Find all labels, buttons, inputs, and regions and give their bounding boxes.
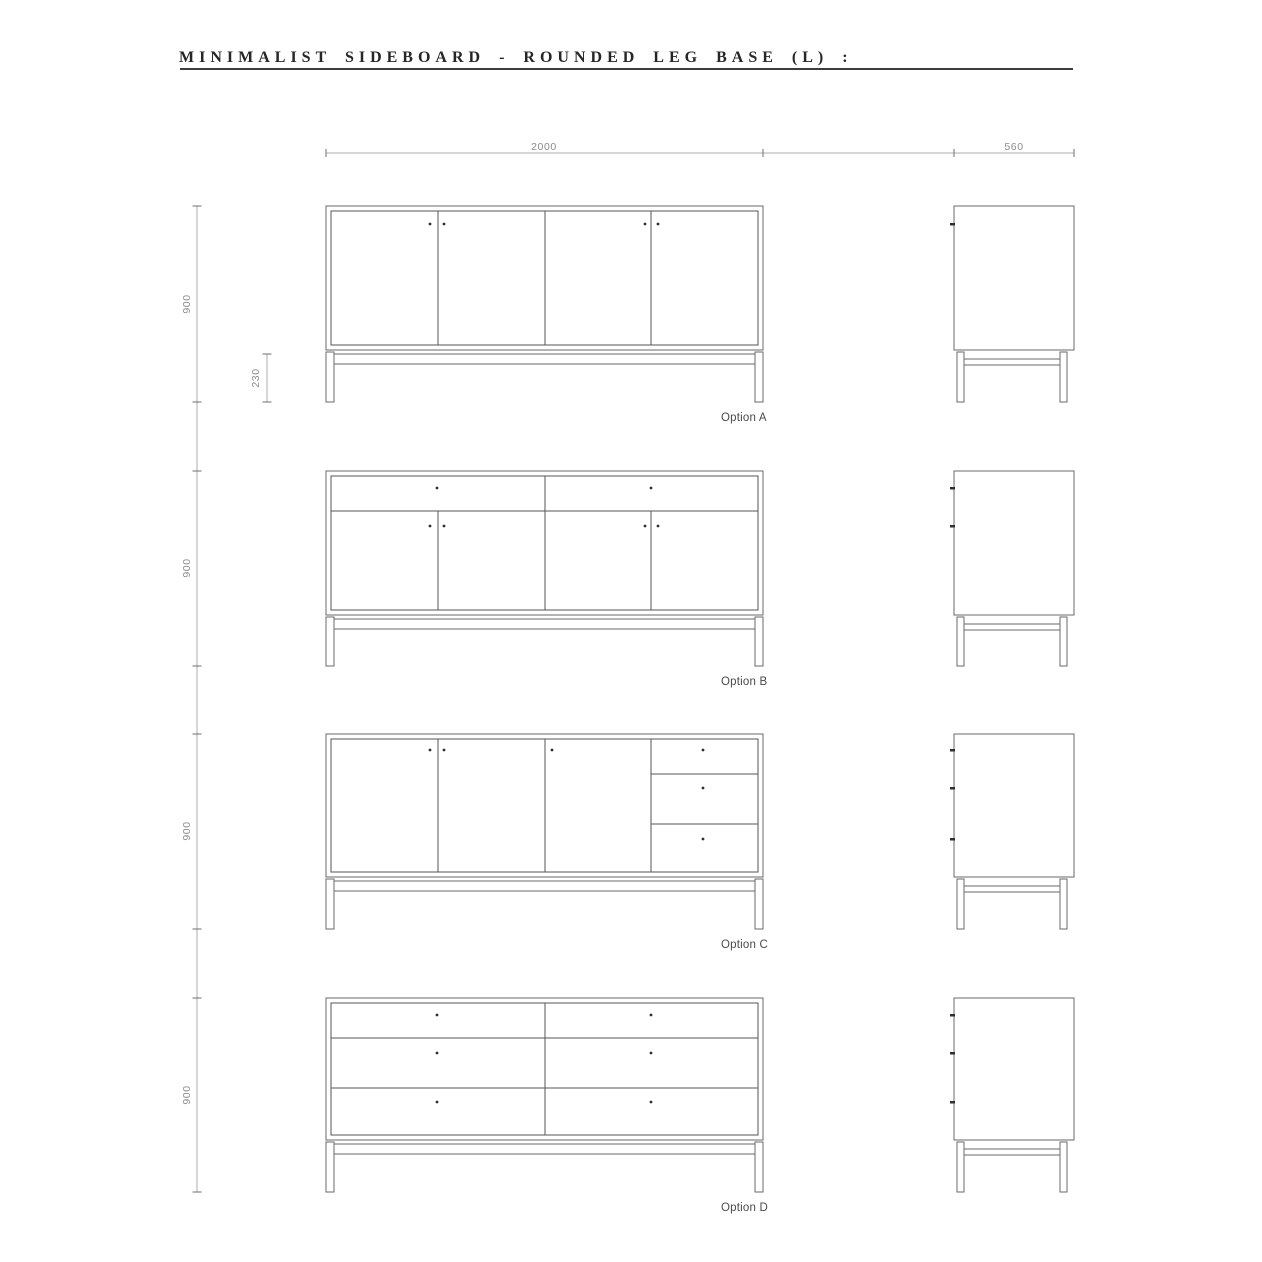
option-b-label: Option B (721, 676, 767, 688)
option-a-side-view (950, 206, 1074, 402)
dim-height-option-d: 900 (181, 1085, 193, 1104)
option-c-label: Option C (721, 939, 768, 951)
dim-leg-height: 230 (250, 368, 262, 387)
option-d-label: Option D (721, 1202, 768, 1214)
option-a-front-view (326, 206, 763, 402)
option-b-front-view (326, 471, 763, 666)
option-a-label: Option A (721, 412, 767, 424)
option-c-side-view (950, 734, 1074, 929)
dim-height-option-b: 900 (181, 558, 193, 577)
dim-height-option-c: 900 (181, 821, 193, 840)
dim-height-option-a: 900 (181, 294, 193, 313)
dim-side-depth: 560 (1004, 141, 1023, 153)
dim-front-width: 2000 (531, 141, 557, 153)
dimension-lines (193, 149, 1075, 1192)
drawing-sheet: MINIMALIST SIDEBOARD - ROUNDED LEG BASE … (0, 0, 1262, 1262)
option-d-side-view (950, 998, 1074, 1192)
option-c-front-view (326, 734, 763, 929)
technical-drawing-canvas (0, 0, 1262, 1262)
option-d-front-view (326, 998, 763, 1192)
option-b-side-view (950, 471, 1074, 666)
